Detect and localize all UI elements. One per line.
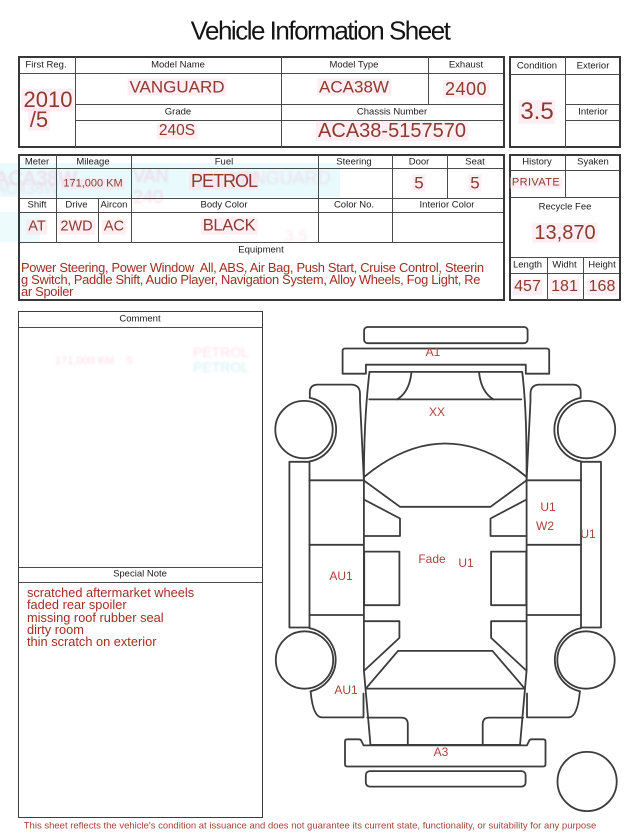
svg-text:U1: U1: [458, 556, 474, 570]
svg-text:U1: U1: [580, 527, 596, 541]
svg-text:AU1: AU1: [329, 569, 353, 583]
svg-text:W2: W2: [536, 519, 554, 533]
svg-text:AU1: AU1: [334, 683, 358, 697]
svg-text:U1: U1: [540, 500, 556, 514]
svg-text:A3: A3: [434, 745, 449, 759]
svg-text:Fade: Fade: [418, 552, 446, 566]
svg-text:XX: XX: [429, 405, 445, 419]
svg-text:A1: A1: [426, 345, 441, 359]
